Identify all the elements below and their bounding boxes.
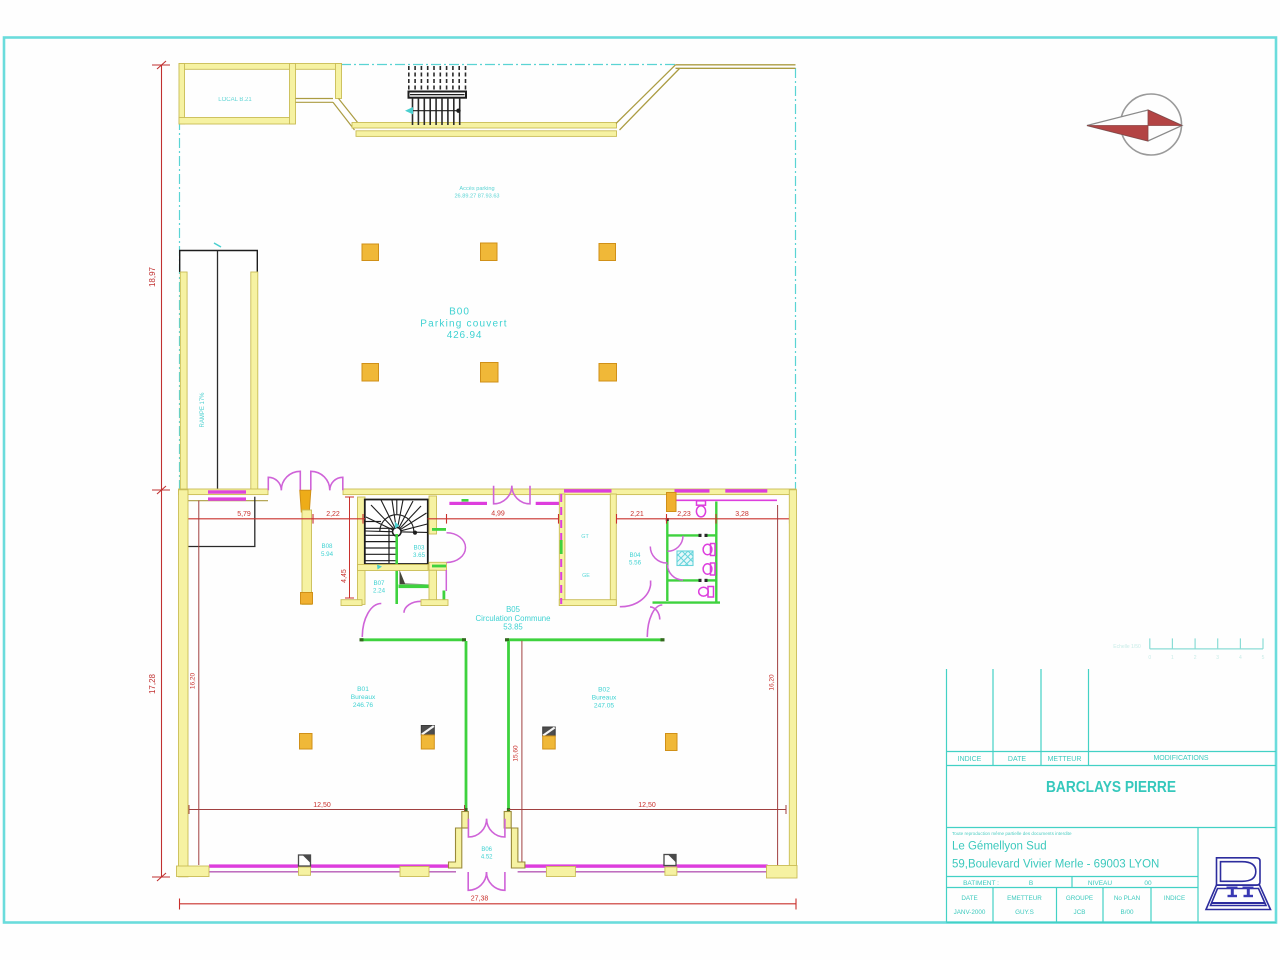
svg-text:Echelle 1/50: Echelle 1/50 xyxy=(1113,644,1141,650)
svg-text:DATE: DATE xyxy=(1008,756,1026,763)
svg-text:MODIFICATIONS: MODIFICATIONS xyxy=(1153,755,1208,762)
svg-text:B06: B06 xyxy=(481,847,492,853)
svg-text:53.85: 53.85 xyxy=(503,623,523,632)
svg-text:0: 0 xyxy=(1148,655,1151,661)
svg-text:JCB: JCB xyxy=(1074,909,1086,916)
svg-text:3: 3 xyxy=(1216,655,1219,661)
svg-text:INDICE: INDICE xyxy=(1164,895,1185,902)
svg-text:2.24: 2.24 xyxy=(373,588,386,595)
svg-text:B05: B05 xyxy=(506,605,521,614)
svg-text:16,20: 16,20 xyxy=(769,674,776,691)
svg-text:2: 2 xyxy=(1194,655,1197,661)
svg-text:4,45: 4,45 xyxy=(341,569,348,583)
svg-text:GT: GT xyxy=(581,534,589,540)
svg-text:15,60: 15,60 xyxy=(513,745,520,762)
svg-text:LOCAL B.21: LOCAL B.21 xyxy=(218,97,252,103)
svg-text:No PLAN: No PLAN xyxy=(1114,895,1141,902)
svg-text:4,99: 4,99 xyxy=(491,511,505,518)
svg-text:B01: B01 xyxy=(357,686,369,693)
svg-text:59,Boulevard Vivier Merle - 69: 59,Boulevard Vivier Merle - 69003 LYON xyxy=(952,859,1159,871)
svg-text:Le Gémellyon Sud: Le Gémellyon Sud xyxy=(952,841,1047,853)
svg-text:5,79: 5,79 xyxy=(237,511,251,518)
svg-text:26.89.27 87.93.63: 26.89.27 87.93.63 xyxy=(454,194,499,200)
svg-text:EMETTEUR: EMETTEUR xyxy=(1007,895,1042,902)
svg-text:2,21: 2,21 xyxy=(630,511,644,518)
svg-text:BARCLAYS PIERRE: BARCLAYS PIERRE xyxy=(1046,779,1176,796)
svg-text:GE: GE xyxy=(582,573,590,579)
svg-text:18,97: 18,97 xyxy=(148,266,157,287)
svg-text:B00: B00 xyxy=(449,307,470,318)
svg-text:Toute reproduction même partie: Toute reproduction même partielle des do… xyxy=(952,831,1072,836)
svg-text:12,50: 12,50 xyxy=(638,802,656,809)
svg-text:B02: B02 xyxy=(598,687,610,694)
svg-text:GROUPE: GROUPE xyxy=(1066,895,1093,902)
svg-text:Bureaux: Bureaux xyxy=(592,695,617,702)
svg-text:B/00: B/00 xyxy=(1121,909,1134,916)
svg-text:426.94: 426.94 xyxy=(447,330,482,341)
svg-text:247.05: 247.05 xyxy=(594,703,615,710)
svg-text:17,28: 17,28 xyxy=(148,673,157,694)
svg-text:00: 00 xyxy=(1144,880,1152,887)
svg-text:3,28: 3,28 xyxy=(735,511,749,518)
svg-text:Parking couvert: Parking couvert xyxy=(420,319,507,330)
svg-text:B: B xyxy=(1029,880,1033,887)
svg-text:2,23: 2,23 xyxy=(677,511,691,518)
svg-text:4.52: 4.52 xyxy=(481,855,493,861)
svg-text:12,50: 12,50 xyxy=(313,802,331,809)
svg-text:DATE: DATE xyxy=(961,895,977,902)
svg-text:BATIMENT :: BATIMENT : xyxy=(963,880,999,887)
svg-text:METTEUR: METTEUR xyxy=(1048,756,1082,763)
svg-text:Bureaux: Bureaux xyxy=(351,694,376,701)
svg-text:NIVEAU: NIVEAU xyxy=(1088,880,1113,887)
svg-text:5: 5 xyxy=(1262,655,1265,661)
svg-text:B04: B04 xyxy=(629,552,641,559)
svg-text:1: 1 xyxy=(1171,655,1174,661)
svg-text:16,20: 16,20 xyxy=(190,672,197,689)
svg-text:INDICE: INDICE xyxy=(958,756,982,763)
svg-text:GUY.S: GUY.S xyxy=(1015,909,1034,916)
svg-text:B07: B07 xyxy=(373,580,385,587)
svg-text:246.76: 246.76 xyxy=(353,702,374,709)
svg-text:JANV-2000: JANV-2000 xyxy=(954,909,986,916)
svg-text:B03: B03 xyxy=(413,545,425,552)
svg-text:27,38: 27,38 xyxy=(471,896,489,903)
svg-text:2,22: 2,22 xyxy=(326,511,340,518)
svg-text:4: 4 xyxy=(1239,655,1242,661)
svg-text:5.56: 5.56 xyxy=(629,560,642,567)
svg-text:B08: B08 xyxy=(321,543,333,550)
svg-text:Accès parking: Accès parking xyxy=(459,186,494,192)
svg-text:5.94: 5.94 xyxy=(321,551,334,558)
svg-text:3.65: 3.65 xyxy=(413,552,426,559)
svg-text:RAMPE 17%: RAMPE 17% xyxy=(200,392,206,428)
